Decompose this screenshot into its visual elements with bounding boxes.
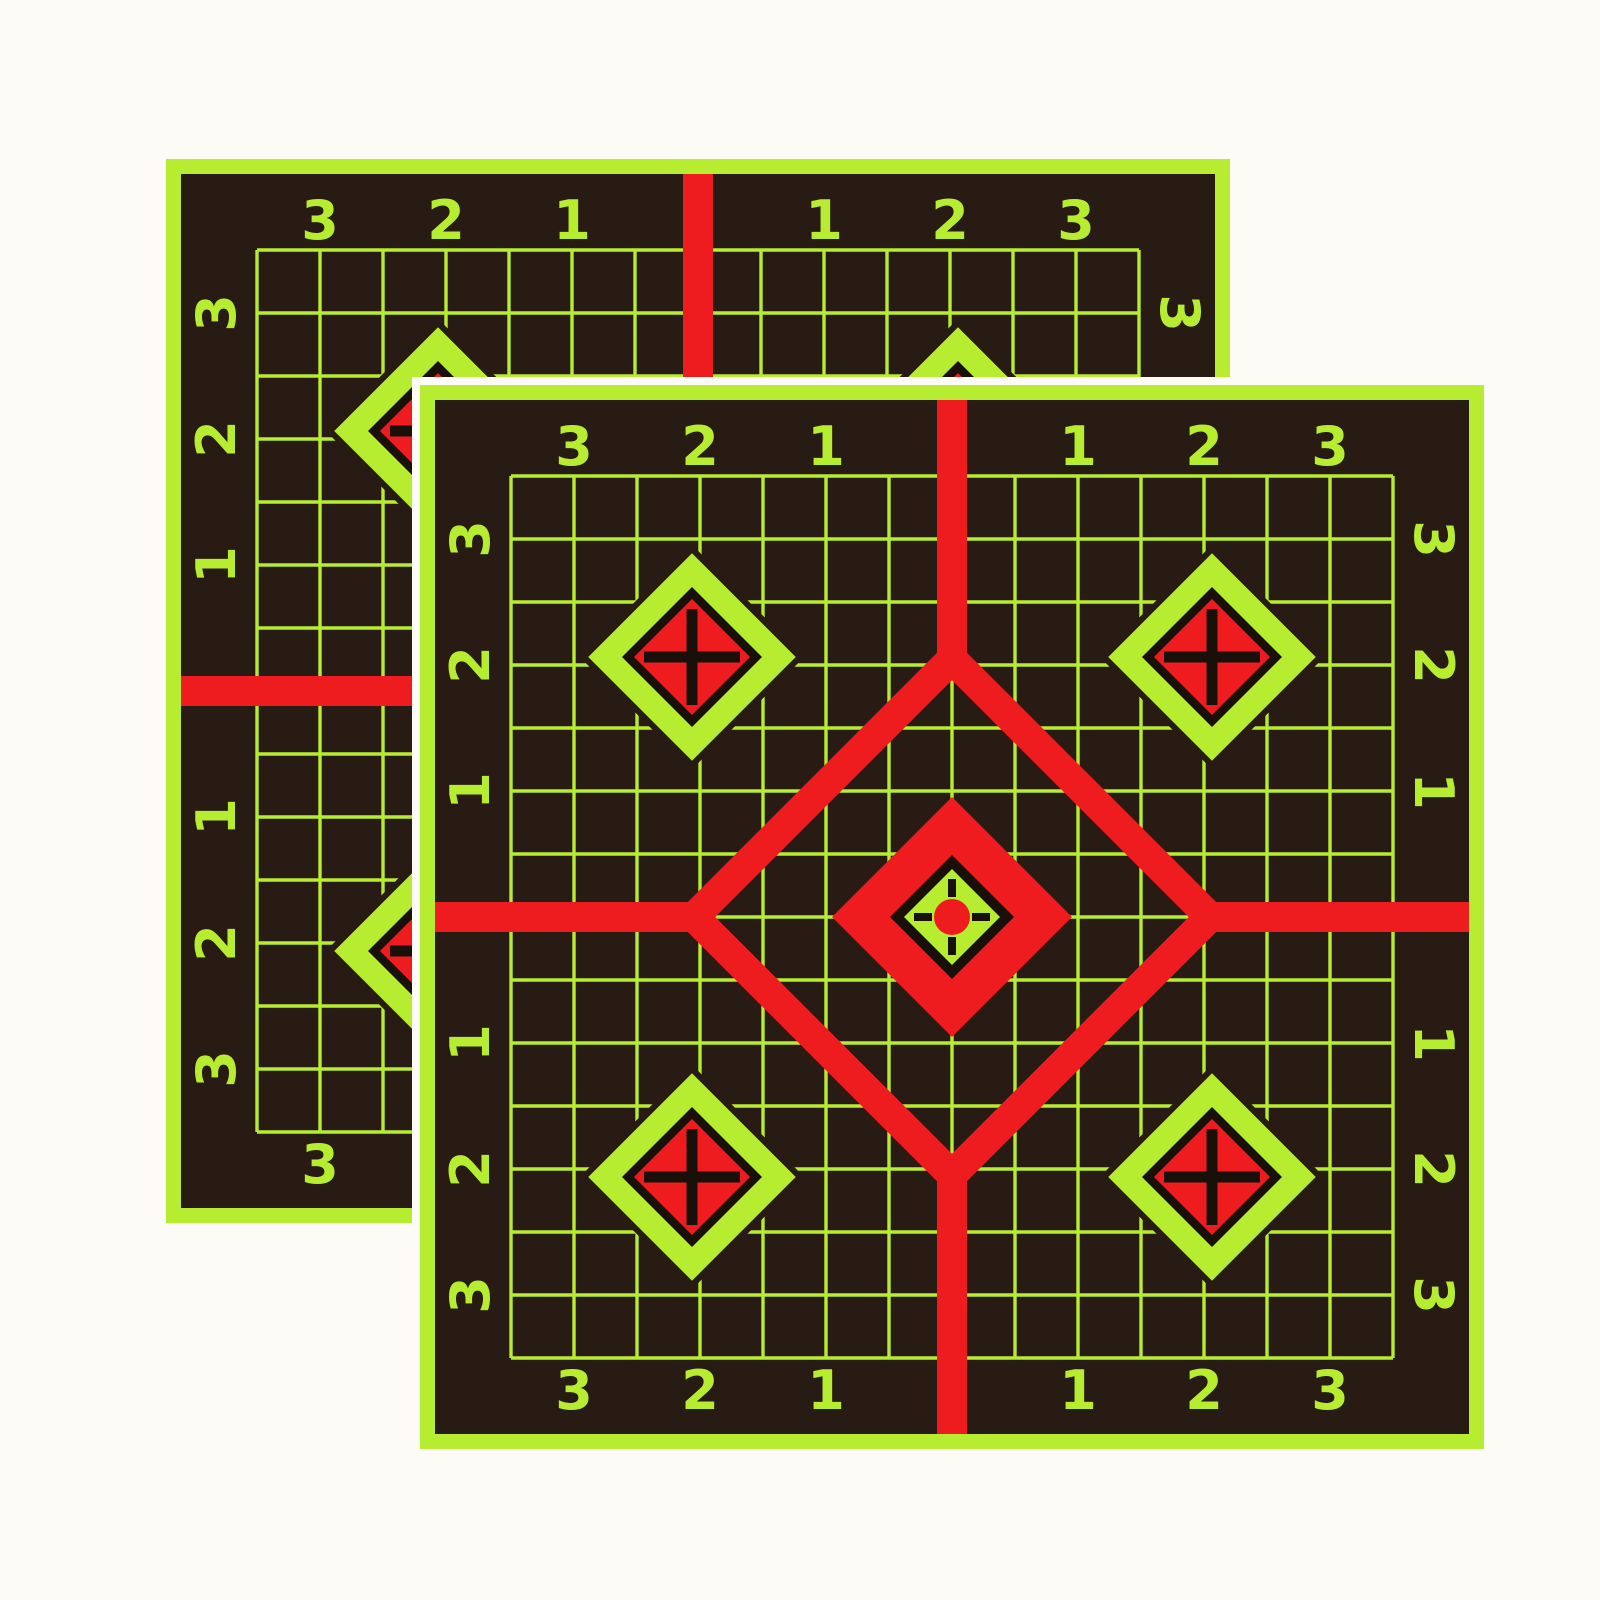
scale-label-top: 3	[1311, 415, 1349, 478]
scale-label-bottom: 2	[1185, 1359, 1223, 1422]
scale-label-right: 3	[1402, 1276, 1465, 1314]
scale-label-top: 2	[1185, 415, 1223, 478]
scale-label-top: 2	[931, 189, 969, 252]
scale-label-right: 2	[1402, 1150, 1465, 1188]
scale-label-left: 1	[185, 546, 248, 584]
scale-label-bottom: 3	[301, 1133, 339, 1196]
scale-label-left: 3	[439, 1276, 502, 1314]
scale-label-top: 3	[555, 415, 593, 478]
bullseye-center-dot	[934, 899, 970, 935]
scale-label-left: 2	[439, 646, 502, 684]
scale-label-left: 3	[439, 520, 502, 558]
scale-label-bottom: 1	[1059, 1359, 1097, 1422]
scale-label-right: 3	[1148, 294, 1211, 332]
scale-label-left: 1	[439, 1024, 502, 1062]
scale-label-right: 1	[1402, 1024, 1465, 1062]
scale-label-left: 1	[439, 772, 502, 810]
scale-label-top: 2	[681, 415, 719, 478]
scale-label-top: 3	[1057, 189, 1095, 252]
scale-label-top: 3	[301, 189, 339, 252]
scale-label-bottom: 1	[807, 1359, 845, 1422]
scale-label-left: 3	[185, 1050, 248, 1088]
scale-label-top: 1	[553, 189, 591, 252]
scale-label-bottom: 3	[555, 1359, 593, 1422]
target-graphic-front: 333322221111111122223333	[420, 385, 1484, 1449]
scale-label-top: 1	[1059, 415, 1097, 478]
scale-label-left: 2	[439, 1150, 502, 1188]
target-sheet-front: 333322221111111122223333	[420, 385, 1484, 1449]
scale-label-left: 3	[185, 294, 248, 332]
scale-label-right: 1	[1402, 772, 1465, 810]
scale-label-top: 1	[805, 189, 843, 252]
scale-label-top: 2	[427, 189, 465, 252]
scale-label-bottom: 2	[681, 1359, 719, 1422]
scale-label-right: 2	[1402, 646, 1465, 684]
scale-label-left: 2	[185, 924, 248, 962]
scale-label-left: 2	[185, 420, 248, 458]
scale-label-right: 3	[1402, 520, 1465, 558]
scale-label-left: 1	[185, 798, 248, 836]
scale-label-bottom: 3	[1311, 1359, 1349, 1422]
scale-label-top: 1	[807, 415, 845, 478]
product-image-canvas: 333322221111111122223333 333322221111111…	[0, 0, 1600, 1600]
